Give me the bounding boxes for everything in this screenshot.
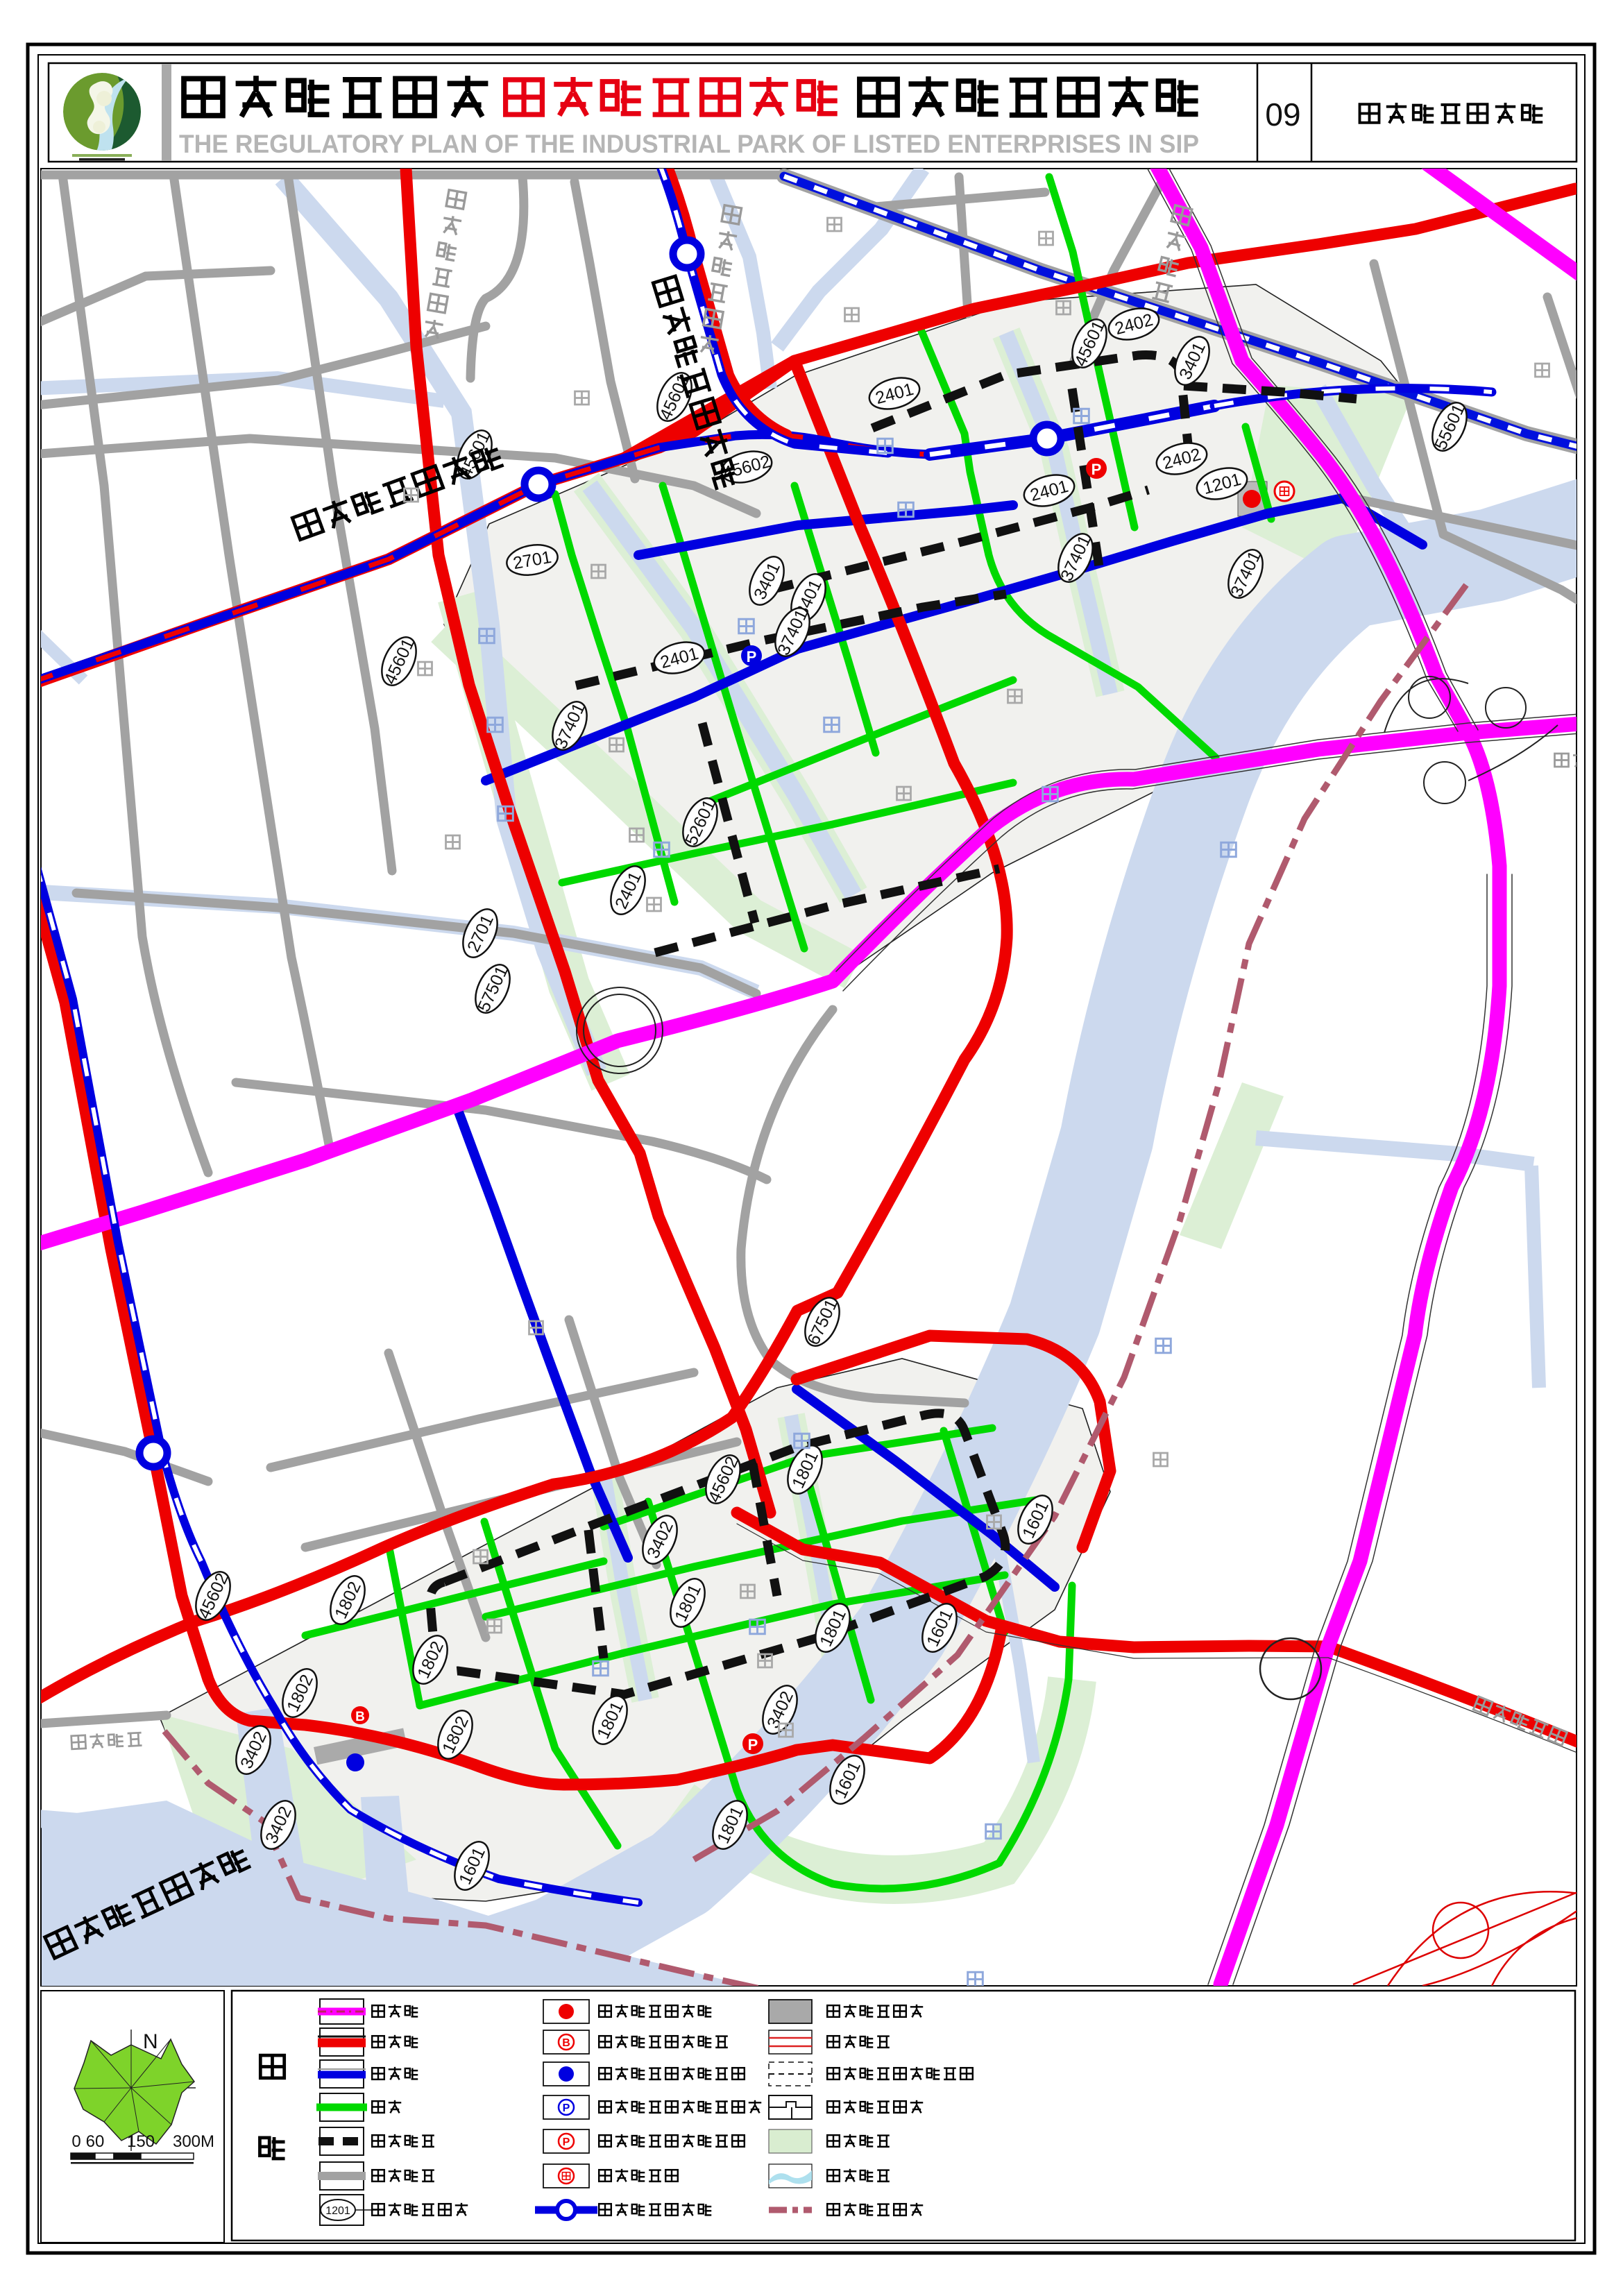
svg-text:300M: 300M (173, 2132, 214, 2151)
svg-text:09: 09 (1265, 96, 1300, 133)
svg-text:60: 60 (86, 2132, 105, 2151)
svg-text:B: B (562, 2037, 570, 2049)
svg-text:0: 0 (71, 2132, 80, 2151)
svg-text:B: B (355, 1710, 365, 1724)
svg-text:1201: 1201 (325, 2205, 350, 2217)
svg-text:P: P (1091, 461, 1102, 478)
svg-text:150: 150 (127, 2132, 155, 2151)
svg-text:P: P (748, 1736, 758, 1753)
svg-text:THE REGULATORY PLAN OF THE IND: THE REGULATORY PLAN OF THE INDUSTRIAL PA… (179, 130, 1199, 158)
svg-text:P: P (563, 2102, 570, 2114)
svg-text:P: P (747, 648, 757, 665)
svg-text:N: N (143, 2030, 158, 2053)
svg-text:P: P (563, 2136, 570, 2148)
